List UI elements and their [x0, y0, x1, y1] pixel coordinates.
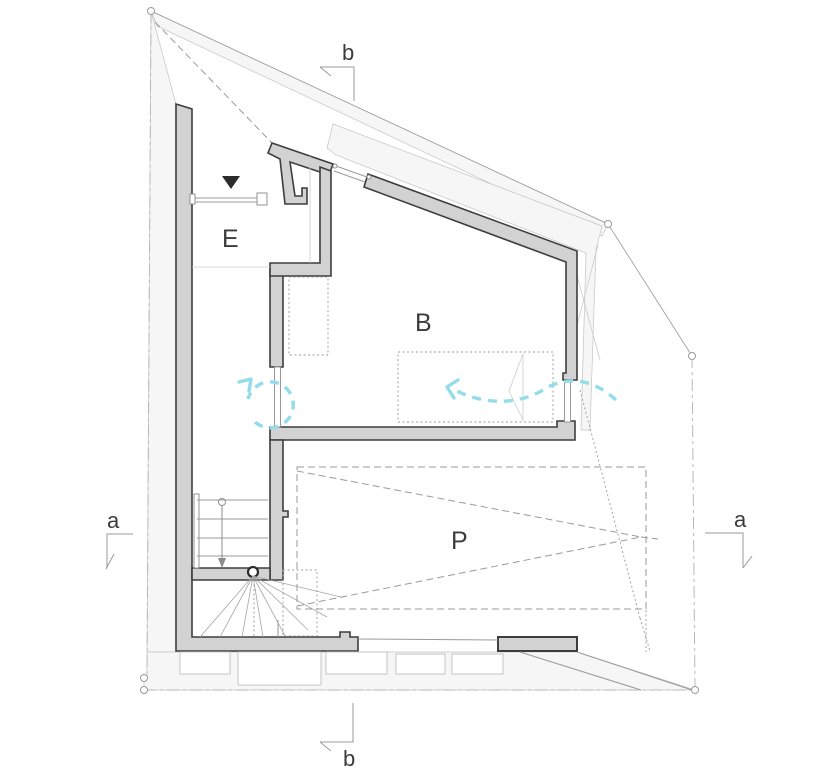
- bed-outline: [398, 352, 553, 422]
- counter-end-cap: [190, 194, 195, 204]
- terrace-fold-tip: [641, 537, 658, 539]
- stair-newel-post-icon: [248, 567, 258, 577]
- room-label-bedroom: B: [415, 309, 432, 337]
- section-marker-a-right: a: [705, 507, 752, 568]
- paver: [396, 654, 445, 674]
- entrance-triangle-icon: [222, 176, 240, 189]
- section-line: [107, 534, 133, 568]
- window-left-of-terrace: [275, 367, 281, 427]
- wall-bedroom-left-pier: [270, 268, 283, 367]
- breeze-arrow-head: [447, 380, 458, 398]
- staircase: [194, 494, 341, 637]
- terrace-fold-upper: [297, 471, 641, 537]
- section-marker-a-left: a: [106, 508, 133, 569]
- boundary-vertex: [148, 8, 155, 15]
- paver: [180, 652, 230, 674]
- site-areas: [144, 11, 695, 690]
- floor-plan-drawing: b b a a E B P: [0, 0, 818, 771]
- boundary-vertex: [689, 353, 696, 360]
- site-left-strip: [147, 11, 176, 652]
- projection-line-2: [640, 618, 650, 651]
- wall-mid-horizontal: [270, 421, 575, 440]
- circulation-swirl-arrow-icon: [248, 382, 293, 428]
- stair-arrow-head: [218, 558, 226, 568]
- floor-plan-page: b b a a E B P: [0, 0, 818, 771]
- boundary-vertex: [141, 687, 148, 694]
- entry-opening-line-1: [336, 166, 367, 177]
- section-label-b-bottom: b: [343, 746, 355, 771]
- terrace-fold-lower: [297, 537, 641, 606]
- furniture: [289, 277, 553, 422]
- section-line: [705, 533, 743, 568]
- room-label-terrace: P: [451, 527, 468, 555]
- section-label-a-left: a: [107, 508, 120, 533]
- section-tick: [743, 556, 752, 568]
- counter-end-cap: [257, 193, 267, 205]
- bed-pillow-chevron: [509, 354, 523, 420]
- room-labels: E B P: [222, 225, 468, 555]
- boundary-top-right: [608, 224, 692, 356]
- swirl-arrow-head: [239, 379, 251, 391]
- paver: [238, 652, 321, 685]
- paver: [452, 654, 503, 674]
- parcel-boundary: [141, 8, 699, 694]
- jamb-point: [367, 175, 371, 179]
- wall-stair-right: [270, 440, 288, 580]
- paver: [326, 652, 387, 674]
- section-marker-b-bottom: b: [320, 703, 355, 771]
- boundary-right: [692, 356, 695, 690]
- section-label-b-top: b: [342, 40, 354, 65]
- wardrobe-outline: [289, 277, 328, 355]
- garden-edge-line: [358, 639, 498, 640]
- boundary-vertex: [141, 675, 148, 682]
- section-line: [320, 703, 353, 742]
- terrace-outline: [297, 467, 646, 609]
- room-label-entry: E: [222, 225, 239, 253]
- boundary-vertex: [605, 221, 612, 228]
- wall-entry-closet: [270, 167, 331, 276]
- boundary-vertex: [692, 687, 699, 694]
- jamb-point: [333, 164, 337, 168]
- section-label-a-right: a: [734, 507, 747, 532]
- section-tick: [320, 67, 331, 76]
- section-tick: [320, 742, 331, 751]
- winder-treads: [200, 576, 341, 637]
- stair-handrail: [194, 494, 199, 568]
- window-bedroom-right: [565, 382, 571, 422]
- wall-garden: [498, 637, 577, 651]
- entry-opening-line-2: [334, 171, 365, 182]
